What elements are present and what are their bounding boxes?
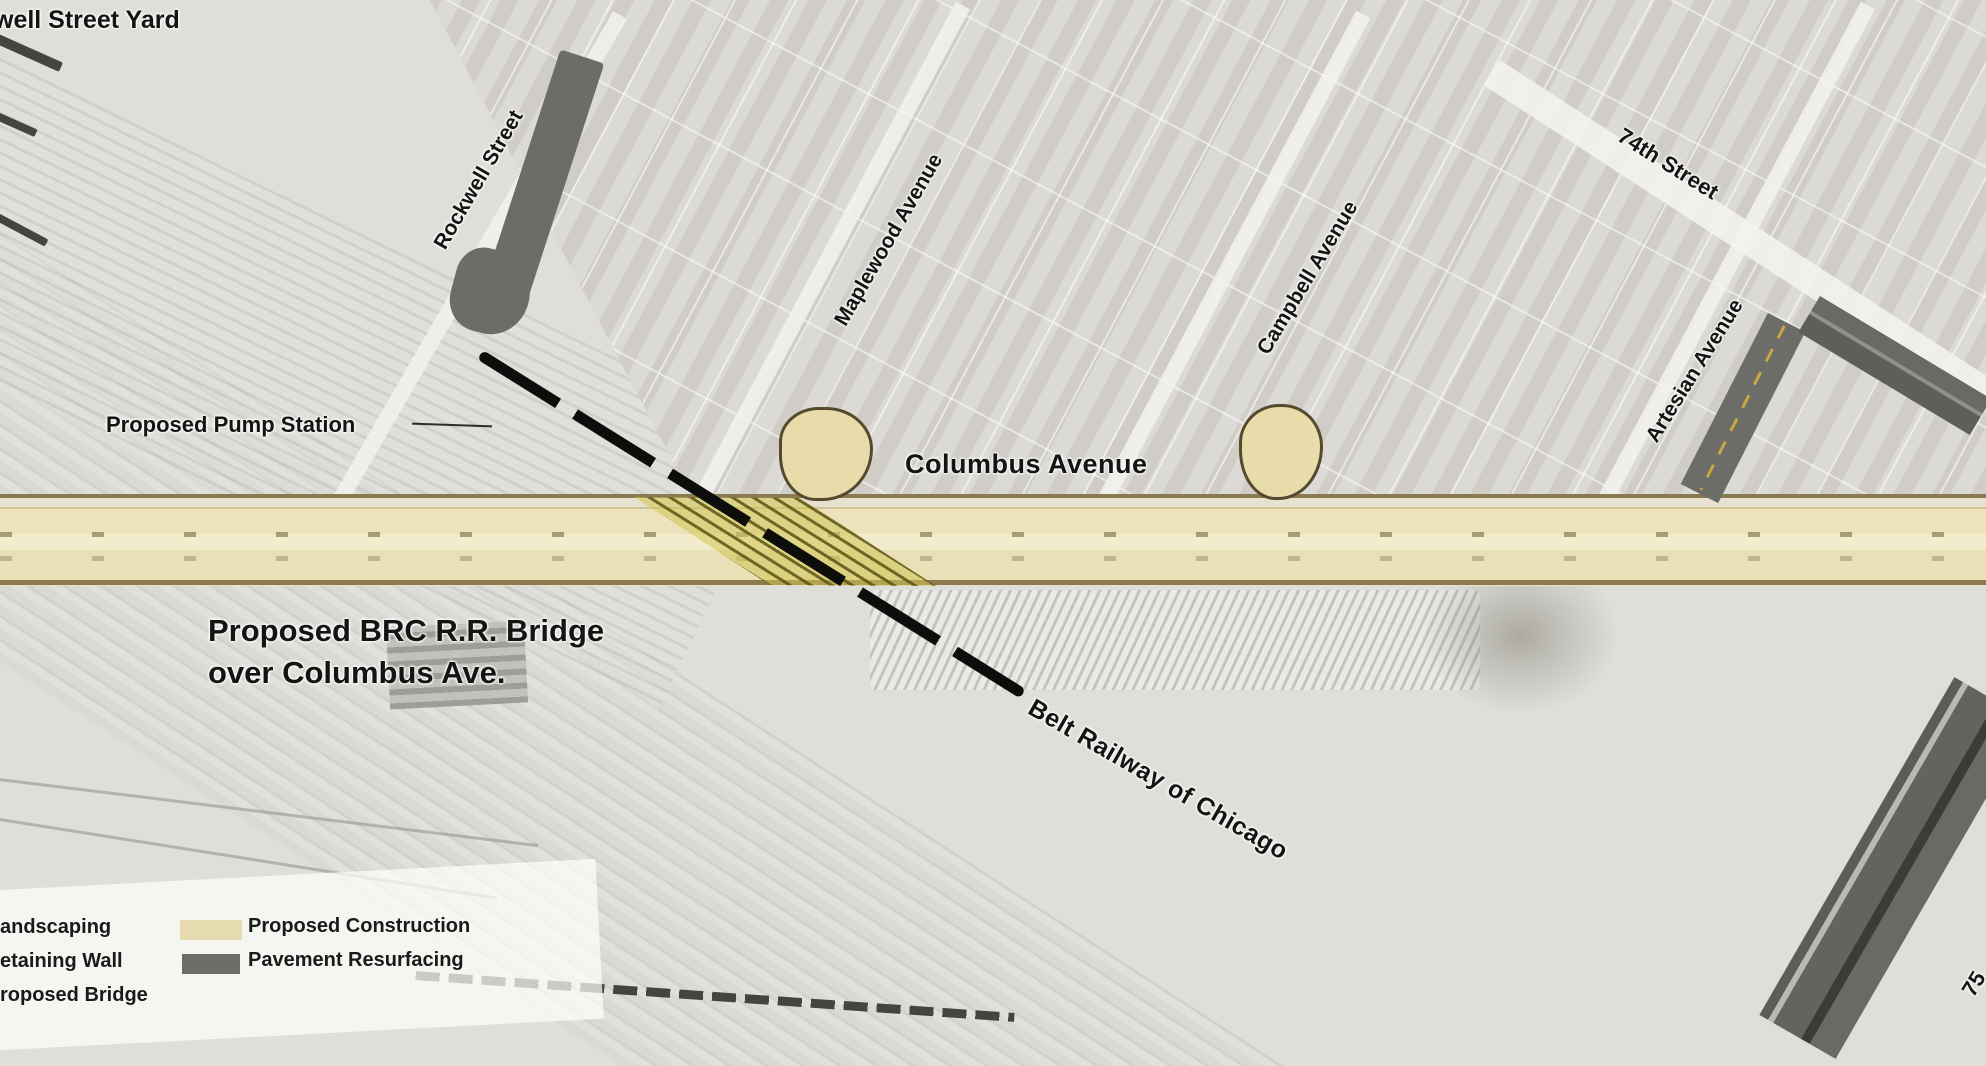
label-proposed-brc-bridge: Proposed BRC R.R. Bridge over Columbus A… xyxy=(208,610,604,694)
legend-item-landscaping: andscaping xyxy=(0,916,111,939)
label-75th-street-partial: 75 xyxy=(1956,967,1986,1002)
label-proposed-pump-station: Proposed Pump Station xyxy=(106,412,355,438)
lane-marking-dashes xyxy=(0,556,1986,561)
label-columbus-avenue: Columbus Avenue xyxy=(905,449,1148,480)
plan-map-canvas: well Street Yard Rockwell Street Maplewo… xyxy=(0,0,1986,1066)
label-belt-railway-of-chicago: Belt Railway of Chicago xyxy=(1023,694,1293,867)
legend-item-pavement-resurfacing: Pavement Resurfacing xyxy=(248,949,464,972)
bridge-title-line2: over Columbus Ave. xyxy=(208,652,604,694)
label-rockwell-street-yard: well Street Yard xyxy=(0,6,180,35)
pavement-resurfacing-southeast xyxy=(1759,677,1986,1059)
legend-swatch-proposed-construction xyxy=(180,920,242,940)
legend-item-proposed-bridge: roposed Bridge xyxy=(0,984,148,1007)
legend-swatch-pavement-resurfacing xyxy=(182,954,240,974)
legend-item-proposed-construction: Proposed Construction xyxy=(248,915,470,938)
parking-lot-texture xyxy=(870,590,1480,690)
bridge-title-line1: Proposed BRC R.R. Bridge xyxy=(208,610,604,652)
columbus-avenue-roadway-overlay xyxy=(0,494,1986,586)
legend-item-retaining-wall: etaining Wall xyxy=(0,950,123,973)
lane-marking-dashes xyxy=(0,532,1986,537)
